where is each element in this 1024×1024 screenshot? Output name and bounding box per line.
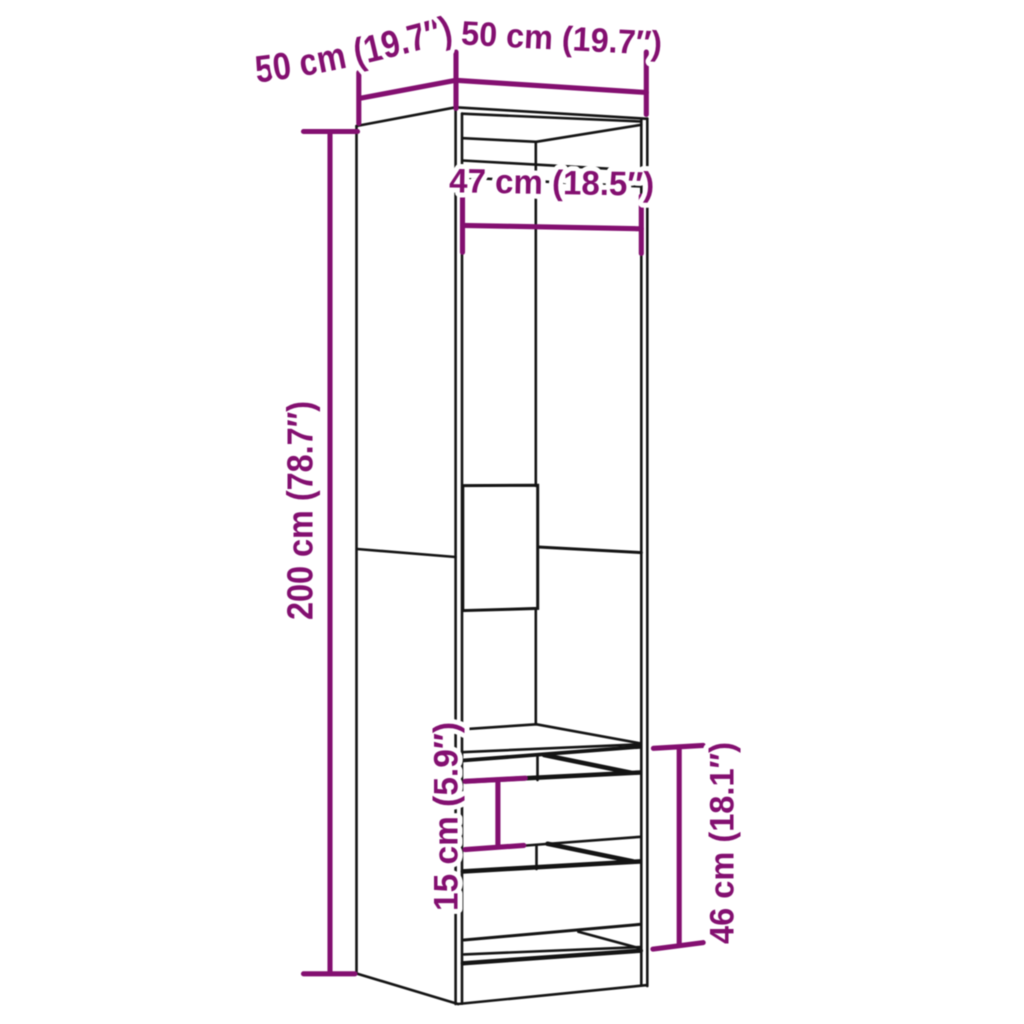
svg-text:47 cm (18.5″): 47 cm (18.5″) bbox=[449, 162, 655, 204]
svg-text:15 cm (5.9″): 15 cm (5.9″) bbox=[428, 722, 466, 911]
svg-text:200 cm (78.7″): 200 cm (78.7″) bbox=[279, 401, 320, 620]
svg-text:46 cm (18.1″): 46 cm (18.1″) bbox=[704, 742, 742, 944]
